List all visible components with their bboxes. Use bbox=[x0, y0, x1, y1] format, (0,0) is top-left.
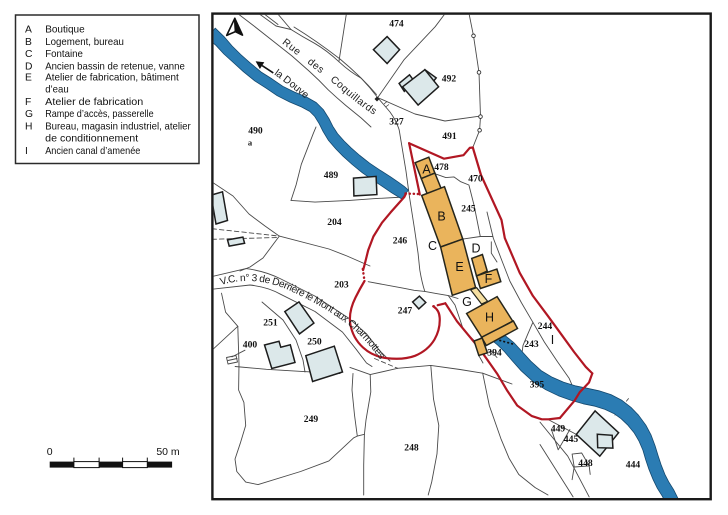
svg-text:Rampe d’accès, passerelle: Rampe d’accès, passerelle bbox=[45, 109, 154, 120]
svg-text:E: E bbox=[25, 73, 32, 84]
svg-text:327: 327 bbox=[389, 117, 404, 128]
svg-text:C: C bbox=[428, 239, 437, 253]
svg-text:Logement, bureau: Logement, bureau bbox=[45, 37, 124, 48]
svg-text:245: 245 bbox=[461, 204, 476, 215]
svg-text:de conditionnement: de conditionnement bbox=[45, 134, 138, 145]
svg-text:Atelier de fabrication, bâtime: Atelier de fabrication, bâtiment bbox=[45, 73, 179, 84]
svg-text:B: B bbox=[437, 210, 445, 224]
svg-text:248: 248 bbox=[404, 443, 419, 454]
svg-text:490: 490 bbox=[248, 126, 263, 137]
svg-text:444: 444 bbox=[626, 460, 641, 471]
svg-text:I: I bbox=[551, 333, 554, 347]
svg-text:247: 247 bbox=[398, 306, 413, 317]
svg-text:Boutique: Boutique bbox=[45, 24, 85, 35]
svg-text:B: B bbox=[25, 37, 32, 48]
svg-text:449: 449 bbox=[551, 424, 566, 435]
svg-text:Ancien bassin de retenue, vann: Ancien bassin de retenue, vanne bbox=[45, 61, 185, 72]
svg-text:489: 489 bbox=[324, 170, 339, 181]
svg-text:395: 395 bbox=[530, 380, 545, 391]
svg-text:Ancien canal d’amenée: Ancien canal d’amenée bbox=[45, 146, 140, 157]
svg-text:474: 474 bbox=[389, 19, 404, 30]
svg-text:I: I bbox=[25, 146, 28, 157]
svg-text:H: H bbox=[25, 122, 32, 133]
svg-text:204: 204 bbox=[327, 217, 342, 228]
svg-text:C: C bbox=[25, 49, 33, 60]
svg-text:470: 470 bbox=[468, 174, 483, 185]
svg-text:478: 478 bbox=[434, 162, 449, 173]
svg-text:H: H bbox=[485, 311, 494, 325]
svg-text:D: D bbox=[471, 242, 480, 256]
svg-text:400: 400 bbox=[243, 340, 258, 351]
svg-text:d’eau: d’eau bbox=[45, 85, 69, 96]
svg-text:246: 246 bbox=[393, 236, 408, 247]
svg-text:E: E bbox=[455, 260, 463, 274]
svg-text:0: 0 bbox=[47, 446, 53, 458]
svg-text:50 m: 50 m bbox=[156, 446, 180, 458]
svg-text:492: 492 bbox=[442, 74, 457, 85]
svg-text:250: 250 bbox=[307, 337, 322, 348]
svg-text:Atelier de fabrication: Atelier de fabrication bbox=[45, 97, 143, 108]
svg-text:249: 249 bbox=[304, 414, 319, 425]
svg-text:D: D bbox=[25, 61, 32, 72]
svg-text:A: A bbox=[25, 24, 32, 35]
svg-text:448: 448 bbox=[578, 458, 593, 469]
svg-text:244: 244 bbox=[538, 321, 553, 332]
svg-text:A: A bbox=[422, 163, 431, 177]
svg-text:Fontaine: Fontaine bbox=[45, 49, 83, 60]
svg-text:203: 203 bbox=[334, 280, 349, 291]
svg-text:G: G bbox=[462, 295, 472, 309]
svg-text:394: 394 bbox=[487, 348, 502, 359]
svg-text:Bureau, magasin industriel, at: Bureau, magasin industriel, atelier bbox=[45, 122, 191, 133]
svg-text:445: 445 bbox=[564, 434, 579, 445]
svg-text:491: 491 bbox=[442, 131, 457, 142]
svg-text:243: 243 bbox=[524, 339, 539, 350]
svg-text:251: 251 bbox=[263, 318, 278, 329]
svg-text:G: G bbox=[25, 109, 33, 120]
svg-text:F: F bbox=[25, 97, 31, 108]
svg-text:F: F bbox=[485, 272, 493, 286]
